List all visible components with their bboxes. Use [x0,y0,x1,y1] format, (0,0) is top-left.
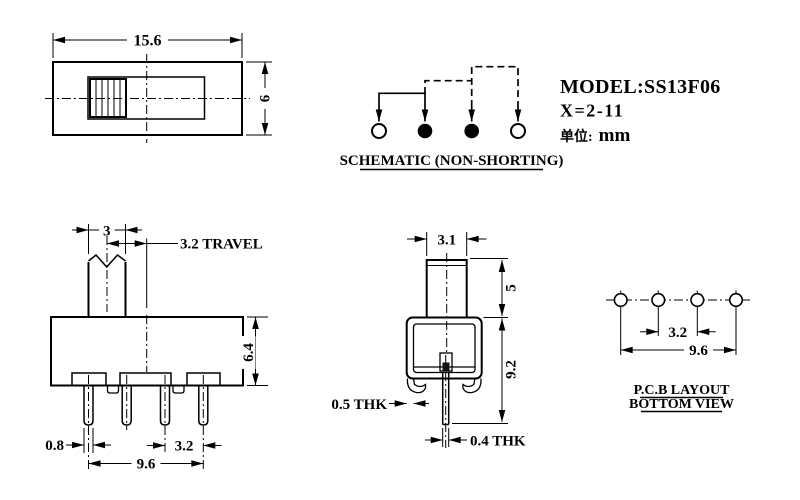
model-number: MODEL:SS13F06 [560,76,721,98]
front-view: 3 3.2 TRAVEL 6.4 0.8 3.2 9.6 [45,224,268,473]
dim-pin-pitch: 3.2 [175,439,194,455]
schematic-caption: SCHEMATIC (NON-SHORTING) [340,153,564,169]
pcb-hole-4 [730,294,743,307]
terminal-pins-front [84,386,208,426]
pcb-caption-line1: P.C.B LAYOUT [634,383,730,398]
schematic-solid-link [379,93,425,107]
schematic-dashed-link-2 [472,67,518,107]
shell-bent-foot-right [463,379,481,393]
title-block: MODEL:SS13F06 X=2-11 单位:mm [560,76,721,146]
schematic-view: SCHEMATIC (NON-SHORTING) [340,67,564,170]
dim-knob-width: 3 [103,224,111,240]
dim-pin-thickness: 0.4 THK [470,434,526,450]
mounting-pedestals [72,373,220,386]
dim-travel: 3.2 TRAVEL [180,237,263,253]
shell-bent-foot-left [407,379,425,393]
top-view: 15.6 6 [45,32,274,143]
dim-pin-span: 9.6 [137,457,156,473]
x-range: X=2-11 [560,101,624,121]
pcb-caption-line2: BOTTOM VIEW [629,397,734,412]
shell-foot-left [108,386,119,394]
shell-foot-right [173,386,184,394]
dim-side-knob-width: 3.1 [437,233,456,249]
terminal-4-open [511,124,525,138]
dim-body-height: 6.4 [241,343,257,362]
pcb-hole-1 [614,294,627,307]
dim-total-height: 9.2 [504,360,520,379]
schematic-dashed-link-1 [425,81,472,94]
dim-top-width: 15.6 [134,33,162,50]
drawing-canvas: 15.6 6 SCHEMATIC (NON-SHORTING) MODEL:SS… [0,0,800,500]
unit-note: 单位:mm [560,125,630,146]
side-view: 3.1 5 9.2 0.5 THK 0.4 THK [331,232,525,450]
technical-drawing-page: 15.6 6 SCHEMATIC (NON-SHORTING) MODEL:SS… [0,0,800,500]
pcb-hole-3 [691,294,704,307]
terminal-2-filled [418,124,433,139]
dim-top-height: 6 [258,94,274,102]
dim-shell-thickness: 0.5 THK [331,397,387,413]
dim-knob-height: 5 [504,284,520,292]
dim-hole-span: 9.6 [689,343,708,359]
pcb-layout-view: 3.2 9.6 P.C.B LAYOUT BOTTOM VIEW [606,291,750,413]
dim-hole-pitch: 3.2 [668,325,687,341]
schematic-arrows [379,107,518,122]
terminal-3-filled [464,124,479,139]
terminal-1-open [372,124,386,138]
dim-pin-width: 0.8 [45,438,64,454]
pcb-hole-2 [652,294,665,307]
